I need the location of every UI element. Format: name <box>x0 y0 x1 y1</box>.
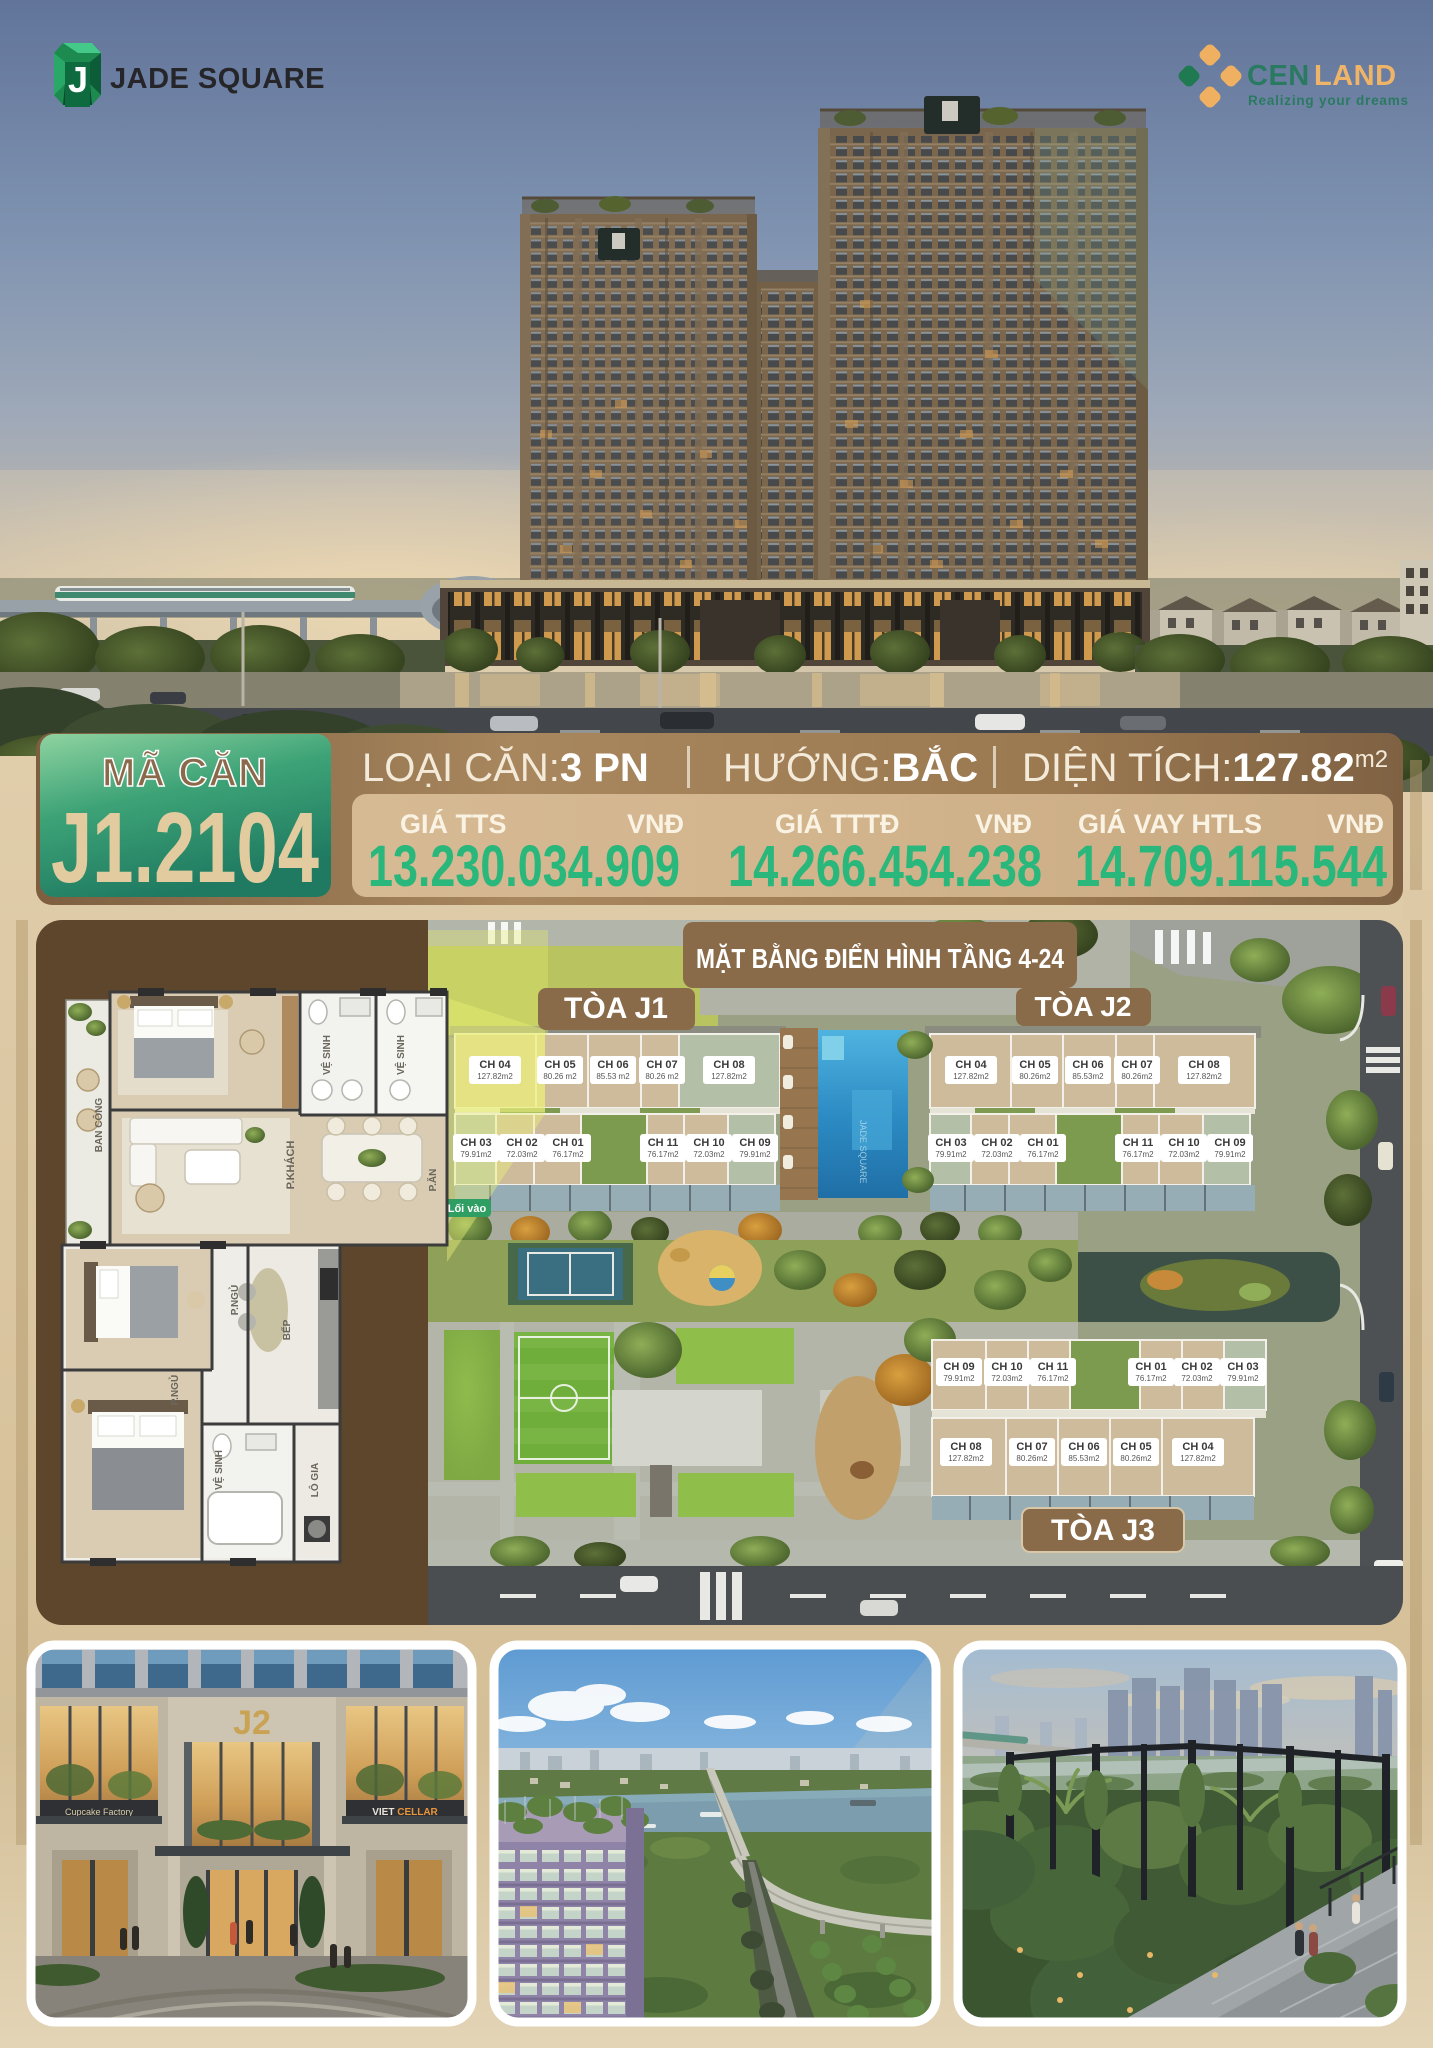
svg-text:CH 02: CH 02 <box>981 1137 1012 1149</box>
svg-text:127.82m2: 127.82m2 <box>953 1072 989 1081</box>
svg-text:TÒA J3: TÒA J3 <box>1051 1513 1155 1547</box>
svg-text:TÒA J1: TÒA J1 <box>564 991 668 1025</box>
svg-text:MÃ CĂN: MÃ CĂN <box>102 749 268 795</box>
svg-text:127.82m2: 127.82m2 <box>1186 1072 1222 1081</box>
svg-text:79.91m2: 79.91m2 <box>935 1150 967 1159</box>
svg-text:P.NGỦ: P.NGỦ <box>228 1285 241 1315</box>
svg-text:72.03m2: 72.03m2 <box>981 1150 1013 1159</box>
svg-text:LAND: LAND <box>1314 60 1397 92</box>
svg-text:VỆ SINH: VỆ SINH <box>394 1035 407 1075</box>
svg-text:CH 06: CH 06 <box>597 1059 628 1071</box>
svg-text:JADE SQUARE: JADE SQUARE <box>110 63 325 95</box>
svg-text:LÔ GIA: LÔ GIA <box>308 1463 321 1497</box>
svg-text:MẶT BẰNG ĐIỂN HÌNH TẦNG 4-24: MẶT BẰNG ĐIỂN HÌNH TẦNG 4-24 <box>696 943 1064 974</box>
svg-text:127.82m2: 127.82m2 <box>477 1072 513 1081</box>
svg-text:VỆ SINH: VỆ SINH <box>320 1035 333 1075</box>
svg-text:CH 11: CH 11 <box>648 1137 679 1149</box>
svg-text:76.17m2: 76.17m2 <box>1122 1150 1154 1159</box>
svg-text:CH 06: CH 06 <box>1072 1059 1103 1071</box>
svg-text:CH 02: CH 02 <box>506 1137 537 1149</box>
svg-text:JADE SQUARE: JADE SQUARE <box>858 1120 868 1184</box>
svg-text:CH 08: CH 08 <box>950 1441 981 1453</box>
svg-text:127.82m2: 127.82m2 <box>948 1454 984 1463</box>
svg-text:CH 09: CH 09 <box>739 1137 770 1149</box>
svg-text:85.53 m2: 85.53 m2 <box>596 1072 630 1081</box>
svg-text:13.230.034.909: 13.230.034.909 <box>368 834 680 899</box>
svg-text:CH 09: CH 09 <box>1214 1137 1245 1149</box>
svg-text:P.NGỦ: P.NGỦ <box>168 1375 181 1405</box>
svg-text:80.26m2: 80.26m2 <box>1121 1072 1153 1081</box>
svg-text:J2: J2 <box>233 1704 271 1742</box>
svg-text:CH 01: CH 01 <box>1135 1361 1166 1373</box>
svg-text:CEN: CEN <box>1247 60 1310 92</box>
svg-text:Realizing your dreams: Realizing your dreams <box>1248 93 1409 108</box>
svg-text:CH 08: CH 08 <box>1188 1059 1219 1071</box>
svg-text:76.17m2: 76.17m2 <box>1135 1374 1167 1383</box>
svg-text:85.53m2: 85.53m2 <box>1068 1454 1100 1463</box>
svg-text:CH 11: CH 11 <box>1038 1361 1069 1373</box>
svg-text:CH 10: CH 10 <box>693 1137 724 1149</box>
svg-text:80.26m2: 80.26m2 <box>1016 1454 1048 1463</box>
svg-text:Lối vào: Lối vào <box>448 1203 487 1215</box>
svg-text:80.26m2: 80.26m2 <box>1019 1072 1051 1081</box>
svg-text:79.91m2: 79.91m2 <box>460 1150 492 1159</box>
svg-text:CH 07: CH 07 <box>1016 1441 1047 1453</box>
svg-text:CH 10: CH 10 <box>1168 1137 1199 1149</box>
svg-text:79.91m2: 79.91m2 <box>739 1150 771 1159</box>
svg-text:TÒA J2: TÒA J2 <box>1035 991 1132 1022</box>
svg-text:BAN CÔNG: BAN CÔNG <box>92 1098 105 1153</box>
svg-text:72.03m2: 72.03m2 <box>1168 1150 1200 1159</box>
svg-text:80.26 m2: 80.26 m2 <box>645 1072 679 1081</box>
svg-text:76.17m2: 76.17m2 <box>1027 1150 1059 1159</box>
svg-text:VỆ SINH: VỆ SINH <box>212 1450 225 1490</box>
svg-text:P.ĂN: P.ĂN <box>426 1169 439 1192</box>
svg-text:79.91m2: 79.91m2 <box>943 1374 975 1383</box>
svg-text:CH 08: CH 08 <box>713 1059 744 1071</box>
svg-text:76.17m2: 76.17m2 <box>1037 1374 1069 1383</box>
svg-text:72.03m2: 72.03m2 <box>506 1150 538 1159</box>
svg-text:DIỆN TÍCH:127.82m2: DIỆN TÍCH:127.82m2 <box>1022 745 1388 790</box>
svg-text:CH 04: CH 04 <box>955 1059 987 1071</box>
svg-text:CH 07: CH 07 <box>1121 1059 1152 1071</box>
svg-text:72.03m2: 72.03m2 <box>991 1374 1023 1383</box>
svg-text:P.KHÁCH: P.KHÁCH <box>284 1141 297 1190</box>
svg-text:80.26m2: 80.26m2 <box>1120 1454 1152 1463</box>
svg-text:CH 03: CH 03 <box>460 1137 491 1149</box>
svg-text:CH 05: CH 05 <box>544 1059 575 1071</box>
svg-text:Cupcake Factory: Cupcake Factory <box>65 1807 134 1817</box>
svg-text:127.82m2: 127.82m2 <box>1180 1454 1216 1463</box>
svg-text:J1.2104: J1.2104 <box>51 792 319 904</box>
svg-text:76.17m2: 76.17m2 <box>647 1150 679 1159</box>
svg-text:CH 11: CH 11 <box>1123 1137 1154 1149</box>
svg-text:72.03m2: 72.03m2 <box>1181 1374 1213 1383</box>
svg-text:79.91m2: 79.91m2 <box>1227 1374 1259 1383</box>
svg-text:CH 05: CH 05 <box>1019 1059 1050 1071</box>
svg-text:127.82m2: 127.82m2 <box>711 1072 747 1081</box>
svg-text:76.17m2: 76.17m2 <box>552 1150 584 1159</box>
svg-text:85.53m2: 85.53m2 <box>1072 1072 1104 1081</box>
svg-text:LOẠI CĂN:3 PN: LOẠI CĂN:3 PN <box>362 745 649 790</box>
svg-text:14.709.115.544: 14.709.115.544 <box>1075 834 1387 899</box>
svg-text:72.03m2: 72.03m2 <box>693 1150 725 1159</box>
svg-text:CH 10: CH 10 <box>991 1361 1022 1373</box>
svg-text:CH 04: CH 04 <box>479 1059 511 1071</box>
svg-text:CH 03: CH 03 <box>935 1137 966 1149</box>
svg-text:CH 06: CH 06 <box>1068 1441 1099 1453</box>
svg-text:CH 01: CH 01 <box>1027 1137 1058 1149</box>
svg-text:CH 02: CH 02 <box>1181 1361 1212 1373</box>
svg-text:HƯỚNG:BẮC: HƯỚNG:BẮC <box>723 744 978 790</box>
svg-text:CH 01: CH 01 <box>552 1137 583 1149</box>
svg-text:CH 09: CH 09 <box>943 1361 974 1373</box>
svg-text:CH 07: CH 07 <box>646 1059 677 1071</box>
svg-text:14.266.454.238: 14.266.454.238 <box>728 834 1042 899</box>
svg-text:J: J <box>68 59 88 100</box>
svg-text:BẾP: BẾP <box>280 1319 293 1340</box>
svg-text:CH 03: CH 03 <box>1227 1361 1258 1373</box>
svg-text:CH 04: CH 04 <box>1182 1441 1214 1453</box>
svg-text:CH 05: CH 05 <box>1120 1441 1151 1453</box>
svg-text:79.91m2: 79.91m2 <box>1214 1150 1246 1159</box>
svg-text:80.26 m2: 80.26 m2 <box>543 1072 577 1081</box>
